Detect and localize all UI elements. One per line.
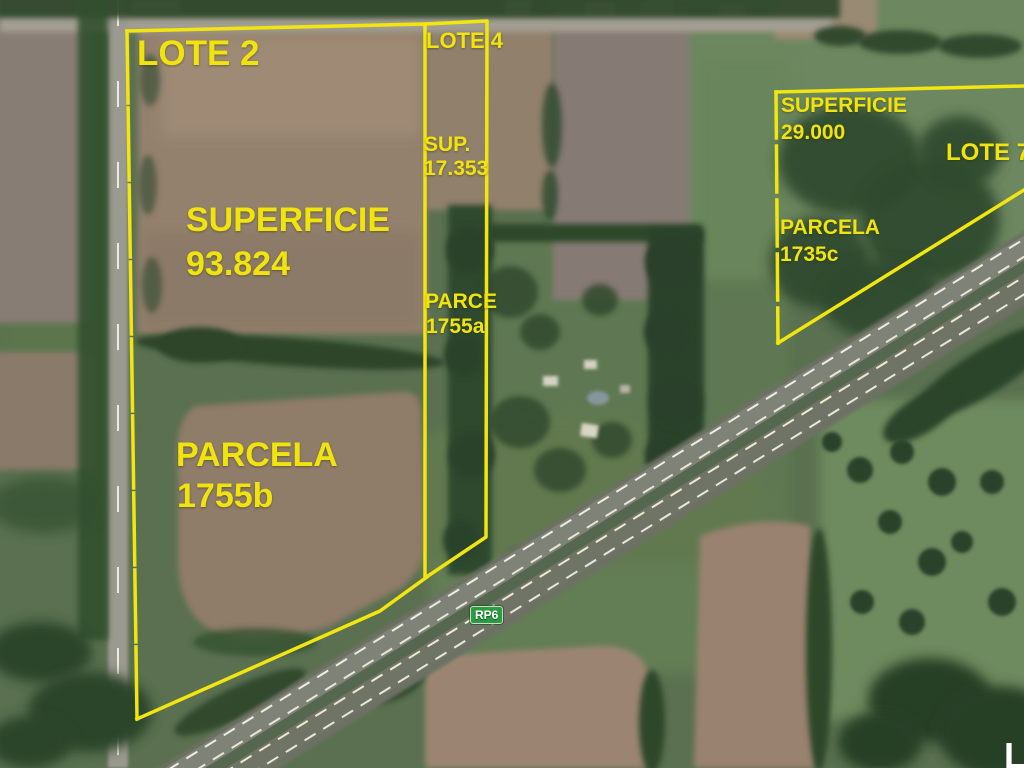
lote7-name-label: LOTE 7 <box>946 141 1024 165</box>
lote2-parcela-label: PARCELA <box>176 438 338 472</box>
lote7-parcela-value: 1735c <box>780 244 838 265</box>
lote7-superficie-value: 29.000 <box>781 122 845 143</box>
lote2-name-label: LOTE 2 <box>137 36 260 71</box>
lote4-name-label: LOTE 4 <box>426 30 503 52</box>
watermark-letter: L <box>1004 738 1024 768</box>
lote2-superficie-label: SUPERFICIE <box>186 203 390 237</box>
pond <box>587 391 609 405</box>
lote4-sup-label: SUP. <box>424 134 470 155</box>
aerial-parcel-map: LOTE 2 SUPERFICIE 93.824 PARCELA 1755b L… <box>0 0 1024 768</box>
lote4-sup-value: 17.353 <box>424 158 488 179</box>
lote2-parcela-value: 1755b <box>177 479 273 513</box>
lote7-parcela-label: PARCELA <box>780 217 880 238</box>
lote7-superficie-label: SUPERFICIE <box>781 95 907 116</box>
lote4-parcela-value: 1755a <box>426 316 484 337</box>
lote2-superficie-value: 93.824 <box>186 247 290 281</box>
lote4-parcela-label: PARCE <box>425 291 497 312</box>
route-rp6-badge: RP6 <box>470 606 503 624</box>
